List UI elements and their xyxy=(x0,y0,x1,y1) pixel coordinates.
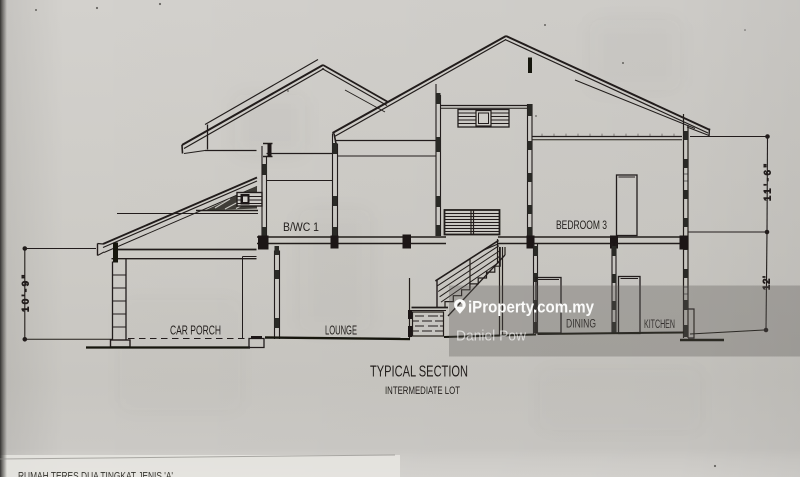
svg-text:Daniel Pow: Daniel Pow xyxy=(456,328,526,345)
svg-text:B/WC 1: B/WC 1 xyxy=(283,222,319,234)
svg-text:TYPICAL SECTION: TYPICAL SECTION xyxy=(370,364,468,381)
svg-text:CAR PORCH: CAR PORCH xyxy=(170,324,221,338)
svg-text:RUMAH TERES DUA TINGKAT JENIS: RUMAH TERES DUA TINGKAT JENIS 'A' xyxy=(18,471,173,477)
svg-text:BEDROOM 3: BEDROOM 3 xyxy=(556,220,607,232)
svg-text:INTERMEDIATE LOT: INTERMEDIATE LOT xyxy=(385,385,460,397)
svg-text:LOUNGE: LOUNGE xyxy=(325,324,357,338)
svg-text:iProperty.com.my: iProperty.com.my xyxy=(468,299,595,317)
